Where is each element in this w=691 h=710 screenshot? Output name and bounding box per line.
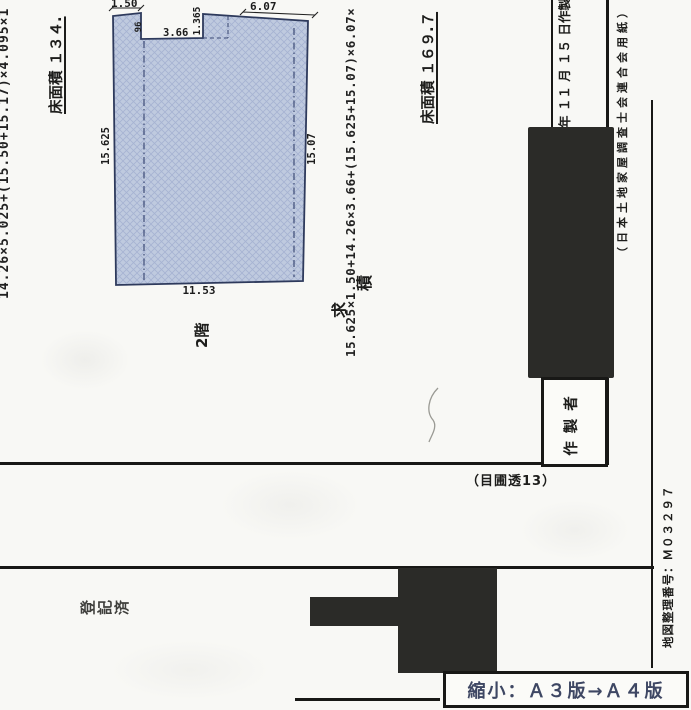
frame-bottom-border <box>0 462 544 465</box>
scanned-survey-document: 14.26×5.025+(15.50+15.17)×4.095×1 床面積 １３… <box>0 0 691 710</box>
scan-noise <box>110 640 270 700</box>
reduction-note: 縮小：Ａ３版→Ａ４版 <box>467 677 664 703</box>
floor-name-label: 2階 <box>195 316 217 348</box>
creator-label: 作製者 <box>565 382 585 462</box>
registry-stamp-char-3: 済 <box>111 600 132 615</box>
reduction-note-box: 縮小：Ａ３版→Ａ４版 <box>443 671 689 708</box>
redaction-block-creator <box>528 127 614 378</box>
dim-label-notch-depth: 96 <box>134 22 144 33</box>
frame-vline-date-cell <box>551 0 553 130</box>
frame-vline-outer <box>651 100 653 668</box>
dim-label-top-left: 1.50 <box>111 0 138 10</box>
kyuseki-char-2: 積 <box>357 267 377 291</box>
redaction-block-bottom-vertical <box>398 568 497 673</box>
dim-label-notch-width: 3.66 <box>163 27 188 39</box>
redaction-block-bottom-arm <box>310 597 399 626</box>
right-floor-area-label: 床面積 １６９.７ <box>422 0 441 124</box>
map-filing-number: 地図整理番号：Ｍ０３２９７ <box>662 486 679 648</box>
dim-label-right-side: 15.07 <box>306 133 318 165</box>
scan-noise <box>220 470 360 540</box>
center-area-formula: 15.625×1.50+14.26×3.66+(15.625+15.07)×6.… <box>344 0 360 357</box>
paper-source-note: （日本土地家屋調査士会連合会用紙） <box>617 2 632 258</box>
registry-stamp: 登 記 済 <box>80 597 129 618</box>
dim-label-left-side: 15.625 <box>100 127 112 165</box>
creation-date-note: 年 １１ 月 １５ 日作製 <box>558 0 575 128</box>
dim-label-top-right: 6.07 <box>250 0 277 13</box>
frame-footnote: （目圃透13） <box>466 470 556 489</box>
dim-label-bottom: 11.53 <box>182 284 215 297</box>
left-floor-area-label: 床面積 １３４. <box>50 0 69 114</box>
creator-label-box: 作製者 <box>541 377 608 467</box>
lower-horizontal-rule <box>0 566 654 569</box>
floor-plan-outline <box>113 13 308 285</box>
bottom-edge-line <box>295 698 440 701</box>
dim-label-step-height: 1.365 <box>192 6 203 35</box>
scan-noise <box>40 330 130 390</box>
scan-noise <box>520 500 630 560</box>
pencil-mark <box>418 382 478 452</box>
left-area-formula: 14.26×5.025+(15.50+15.17)×4.095×1 <box>0 0 14 299</box>
floor-plan-drawing: 1.50 6.07 3.66 96 1.365 15.625 15.07 11.… <box>95 0 335 300</box>
